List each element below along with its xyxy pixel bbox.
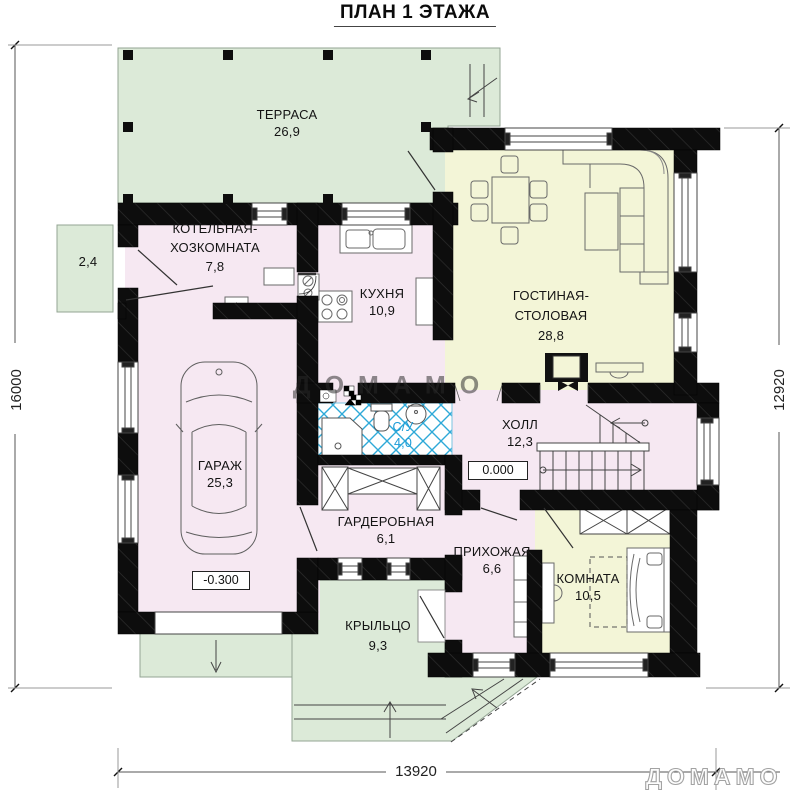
window-hall-right [697, 418, 719, 485]
garage-area: 25,3 [198, 474, 242, 491]
bathroom-name: С/У [392, 419, 413, 435]
kitchen-label: КУХНЯ 10,9 [360, 285, 404, 319]
boiler-label: КОТЕЛЬНАЯ- ХОЗКОМНАТА 7,8 [170, 219, 260, 276]
bedroom-area: 10,5 [557, 587, 620, 604]
window-living-top [505, 128, 612, 150]
entry-area: 6,6 [453, 560, 530, 577]
side-area-value: 2,4 [79, 253, 98, 270]
porch-area: 9,3 [345, 636, 411, 656]
wardrobe-area: 6,1 [338, 530, 435, 547]
living-name-1: ГОСТИНАЯ- [513, 286, 589, 306]
window-kitchen-top [342, 203, 410, 225]
garage-label: ГАРАЖ 25,3 [198, 457, 242, 491]
window-living-right-1 [674, 173, 697, 272]
porch-label: КРЫЛЬЦО 9,3 [345, 616, 411, 656]
entry-label: ПРИХОЖАЯ 6,6 [453, 543, 530, 577]
boiler-area: 7,8 [170, 257, 260, 276]
window-bedroom-bottom [550, 653, 648, 677]
window-wardrobe-1 [338, 558, 362, 580]
kitchen-name: КУХНЯ [360, 285, 404, 302]
elevation-garage: -0.300 [192, 571, 250, 590]
window-entry-bottom [473, 653, 515, 677]
bedroom-label: КОМНАТА 10,5 [557, 570, 620, 604]
hall-area: 12,3 [502, 433, 538, 450]
terrace-label: ТЕРРАСА 26,9 [257, 106, 318, 140]
bathroom-label: С/У 4,0 [392, 419, 413, 451]
boiler-name-1: КОТЕЛЬНАЯ- [170, 219, 260, 238]
window-wardrobe-2 [387, 558, 410, 580]
entry-name: ПРИХОЖАЯ [453, 543, 530, 560]
porch-name: КРЫЛЬЦО [345, 616, 411, 636]
stove [318, 291, 352, 322]
dimension-bottom: 13920 [389, 764, 443, 780]
window-living-right-2 [674, 313, 697, 352]
floor-plan: ПЛАН 1 ЭТАЖА ТЕРРАСА 26,9 2,4 КОТЕЛЬНАЯ-… [0, 0, 800, 794]
garage-name: ГАРАЖ [198, 457, 242, 474]
watermark-center: ДОМАМО [293, 372, 493, 401]
shower [322, 418, 362, 457]
bathroom-area: 4,0 [392, 435, 413, 451]
plan-title: ПЛАН 1 ЭТАЖА [334, 2, 496, 27]
hall-label: ХОЛЛ 12,3 [502, 416, 538, 450]
dimension-right: 12920 [772, 369, 788, 411]
garage-door-opening [155, 612, 282, 634]
watermark-corner: ДОМАМО [645, 764, 782, 791]
elevation-hall: 0.000 [468, 461, 528, 480]
wardrobe-label: ГАРДЕРОБНАЯ 6,1 [338, 513, 435, 547]
bedroom-closets [580, 507, 670, 534]
terrace-name: ТЕРРАСА [257, 106, 318, 123]
living-area: 28,8 [513, 326, 589, 346]
toilet [371, 404, 392, 431]
boiler-name-2: ХОЗКОМНАТА [170, 238, 260, 257]
kitchen-area: 10,9 [360, 302, 404, 319]
terrace-area: 26,9 [257, 123, 318, 140]
living-name-2: СТОЛОВАЯ [513, 306, 589, 326]
bed [627, 548, 673, 632]
dimension-left: 16000 [9, 369, 25, 411]
side-area-label: 2,4 [79, 253, 98, 270]
wardrobe-name: ГАРДЕРОБНАЯ [338, 513, 435, 530]
hall-name: ХОЛЛ [502, 416, 538, 433]
bedroom-name: КОМНАТА [557, 570, 620, 587]
window-garage-left-2 [118, 475, 138, 543]
living-label: ГОСТИНАЯ- СТОЛОВАЯ 28,8 [513, 286, 589, 346]
window-garage-left-1 [118, 362, 138, 433]
front-door [418, 590, 445, 642]
